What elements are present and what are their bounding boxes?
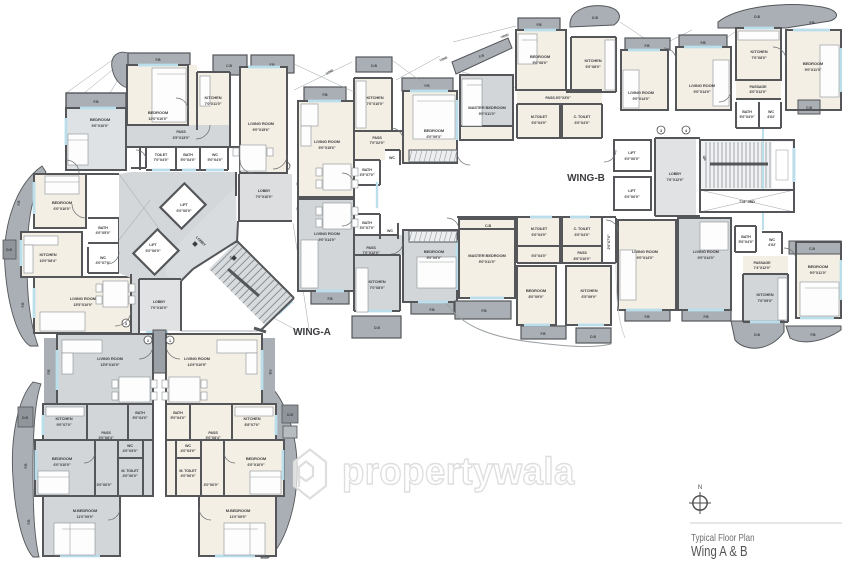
svg-text:F.B: F.B (93, 100, 99, 104)
svg-text:4'0"X6'0": 4'0"X6'0" (122, 474, 137, 478)
svg-text:2: 2 (147, 339, 149, 343)
svg-text:KITCHEN: KITCHEN (584, 58, 601, 63)
svg-text:4'0"X7'0": 4'0"X7'0" (95, 261, 110, 265)
svg-text:6'0"X6'0": 6'0"X6'0" (176, 209, 191, 213)
svg-text:F.B: F.B (327, 297, 333, 301)
svg-text:D.B: D.B (592, 16, 598, 20)
svg-text:BEDROOM: BEDROOM (148, 110, 169, 115)
svg-text:M. TOILET: M. TOILET (121, 469, 139, 473)
svg-text:WC: WC (389, 156, 395, 160)
svg-text:10'0"X8'4": 10'0"X8'4" (40, 259, 57, 263)
svg-text:F.B: F.B (540, 332, 546, 336)
svg-text:5'0"X4'0": 5'0"X4'0" (132, 416, 147, 420)
svg-text:LIVING ROOM: LIVING ROOM (248, 121, 275, 126)
svg-text:LIVING ROOM: LIVING ROOM (70, 296, 97, 301)
svg-text:9'0"X9'0": 9'0"X9'0" (426, 256, 441, 260)
svg-text:LIVING ROOM: LIVING ROOM (184, 356, 211, 361)
svg-text:14'9"X10'5": 14'9"X10'5" (188, 363, 207, 367)
svg-text:KITCHEN: KITCHEN (756, 292, 773, 297)
svg-text:KITCHEN: KITCHEN (204, 95, 221, 100)
svg-text:LIVING ROOM: LIVING ROOM (632, 249, 659, 254)
svg-text:PASS: PASS (366, 246, 376, 250)
svg-text:3'5"X7'0": 3'5"X7'0" (359, 173, 374, 177)
svg-text:PASS: PASS (577, 251, 587, 255)
svg-text:9'0"X14'0": 9'0"X14'0" (698, 256, 715, 260)
svg-text:8'0"X9'0": 8'0"X9'0" (528, 295, 543, 299)
svg-text:F.B: F.B (703, 315, 709, 319)
svg-text:BATH: BATH (362, 168, 372, 172)
svg-text:7'11"-MID: 7'11"-MID (739, 200, 755, 204)
svg-text:M.BEDROOM: M.BEDROOM (73, 508, 98, 513)
svg-text:BATH: BATH (362, 221, 372, 225)
svg-text:9'0"X7'0": 9'0"X7'0" (56, 423, 71, 427)
svg-text:7'0"X4'0": 7'0"X4'0" (153, 158, 168, 162)
svg-text:WC: WC (769, 238, 775, 242)
svg-text:F.B: F.B (155, 58, 161, 62)
svg-text:LIFT: LIFT (628, 189, 636, 193)
svg-text:BATH: BATH (183, 153, 193, 157)
svg-text:4'0"X6'0": 4'0"X6'0" (180, 474, 195, 478)
svg-text:7'6"X10'0": 7'6"X10'0" (367, 102, 384, 106)
svg-text:6'6"X4'0": 6'6"X4'0" (531, 233, 546, 237)
svg-text:6'0"X9'3": 6'0"X9'3" (426, 135, 441, 139)
svg-text:9'0"X11'0": 9'0"X11'0" (805, 68, 822, 72)
svg-text:WC: WC (100, 256, 106, 260)
svg-text:PASS: PASS (208, 431, 218, 435)
svg-text:BEDROOM: BEDROOM (424, 249, 445, 254)
svg-text:7'6"X12'0": 7'6"X12'0" (667, 178, 684, 182)
svg-text:7'0"X8'0": 7'0"X8'0" (369, 286, 384, 290)
svg-text:Wing A & B: Wing A & B (691, 543, 748, 560)
svg-text:10'0"X10'0": 10'0"X10'0" (149, 117, 168, 121)
svg-text:9'0"X14'0": 9'0"X14'0" (694, 90, 711, 94)
svg-text:BEDROOM: BEDROOM (803, 61, 824, 66)
svg-text:BATH: BATH (742, 110, 752, 114)
svg-text:5'0"X4'0": 5'0"X4'0" (170, 416, 185, 420)
svg-text:9'0"X15'6": 9'0"X15'6" (253, 128, 270, 132)
svg-text:BEDROOM: BEDROOM (246, 456, 267, 461)
svg-text:6'0"X6'0": 6'0"X6'0" (624, 157, 639, 161)
svg-text:LIFT: LIFT (628, 151, 636, 155)
svg-text:KITCHEN: KITCHEN (55, 416, 72, 421)
svg-text:BEDROOM: BEDROOM (808, 264, 829, 269)
svg-text:7'0"X10'0": 7'0"X10'0" (256, 195, 273, 199)
svg-text:C. TOILET: C. TOILET (574, 227, 592, 231)
svg-text:F.B: F.B (644, 315, 650, 319)
svg-text:PASS 8'0"X3'0": PASS 8'0"X3'0" (545, 96, 571, 100)
svg-text:F.B: F.B (322, 93, 328, 97)
svg-text:Typical Floor Plan: Typical Floor Plan (691, 532, 755, 543)
svg-text:4'0"X5'0": 4'0"X5'0" (95, 231, 110, 235)
svg-text:7'6"X8'0": 7'6"X8'0" (751, 56, 766, 60)
svg-text:9'0"X14'0": 9'0"X14'0" (637, 256, 654, 260)
svg-text:PASSAGE: PASSAGE (753, 261, 771, 265)
svg-text:F.B: F.B (24, 463, 28, 469)
svg-text:8'0"X12'0": 8'0"X12'0" (750, 90, 767, 94)
svg-text:F.B: F.B (809, 21, 815, 25)
svg-text:C.B: C.B (485, 224, 491, 228)
svg-text:3'5"X13'0": 3'5"X13'0" (173, 136, 190, 140)
svg-text:F.B: F.B (47, 369, 51, 375)
svg-text:WC: WC (212, 153, 218, 157)
svg-text:F.B: F.B (268, 369, 272, 375)
svg-text:D.B: D.B (287, 413, 293, 417)
svg-text:7'0"X10'0": 7'0"X10'0" (151, 306, 168, 310)
svg-text:F.B: F.B (536, 23, 542, 27)
svg-text:propertywala: propertywala (342, 449, 575, 492)
svg-text:C.B: C.B (226, 64, 232, 68)
svg-text:LIVING ROOM: LIVING ROOM (689, 83, 716, 88)
svg-text:3'6"X7'0": 3'6"X7'0" (359, 226, 374, 230)
svg-text:7'0"X12'0": 7'0"X12'0" (363, 251, 380, 255)
svg-text:4'0"X3'0": 4'0"X3'0" (180, 449, 195, 453)
svg-text:BATH: BATH (173, 411, 183, 415)
svg-text:7'0"X11'0": 7'0"X11'0" (205, 102, 222, 106)
svg-text:WING-A: WING-A (293, 327, 331, 338)
svg-text:9'0"X11'0": 9'0"X11'0" (479, 260, 496, 264)
svg-text:7'6"X9'3": 7'6"X9'3" (757, 299, 772, 303)
svg-text:D.B: D.B (754, 15, 760, 19)
svg-text:PASS: PASS (176, 130, 186, 134)
svg-text:D.B: D.B (374, 326, 380, 330)
svg-text:LIVING ROOM: LIVING ROOM (628, 90, 655, 95)
svg-text:15'5"X10'0": 15'5"X10'0" (74, 303, 93, 307)
svg-text:D.B: D.B (371, 64, 377, 68)
svg-text:F.B: F.B (644, 44, 650, 48)
svg-text:6'0"X10'0": 6'0"X10'0" (54, 463, 71, 467)
svg-text:PASS: PASS (372, 136, 382, 140)
svg-text:LIFT: LIFT (149, 243, 157, 247)
svg-text:M.BEDROOM: M.BEDROOM (226, 508, 251, 513)
svg-text:6'6"X4'0": 6'6"X4'0" (531, 121, 546, 125)
svg-text:BATH: BATH (98, 226, 108, 230)
svg-text:BATH: BATH (741, 235, 751, 239)
svg-text:LIVING ROOM: LIVING ROOM (97, 356, 124, 361)
svg-text:N: N (698, 485, 702, 491)
svg-text:LIVING ROOM: LIVING ROOM (314, 231, 341, 236)
svg-text:BEDROOM: BEDROOM (52, 456, 73, 461)
svg-text:KITCHEN: KITCHEN (580, 288, 597, 293)
svg-text:KITCHEN: KITCHEN (368, 279, 385, 284)
svg-text:9'0"X11'0": 9'0"X11'0" (810, 271, 827, 275)
svg-text:6'5"X9'0": 6'5"X9'0" (581, 295, 596, 299)
svg-text:8'6"X10'0": 8'6"X10'0" (574, 257, 591, 261)
svg-text:6'6"X4'0": 6'6"X4'0" (531, 254, 546, 258)
svg-text:BATH: BATH (135, 411, 145, 415)
svg-text:4'X2': 4'X2' (768, 243, 776, 247)
svg-text:3'0"X8'4": 3'0"X8'4" (98, 436, 113, 440)
svg-text:6'0"X6'0": 6'0"X6'0" (145, 249, 160, 253)
svg-text:9'0"X14'0": 9'0"X14'0" (633, 97, 650, 101)
svg-text:M.TOILET: M.TOILET (531, 227, 548, 231)
svg-text:LIVING ROOM: LIVING ROOM (314, 139, 341, 144)
svg-text:BEDROOM: BEDROOM (424, 128, 445, 133)
svg-text:F.B: F.B (481, 309, 487, 313)
svg-text:LOBBY: LOBBY (669, 172, 682, 176)
svg-text:LIFT: LIFT (180, 203, 188, 207)
svg-text:6'0"X10'0": 6'0"X10'0" (248, 463, 265, 467)
svg-text:5'0"X4'0": 5'0"X4'0" (180, 158, 195, 162)
svg-text:LOBBY: LOBBY (153, 300, 166, 304)
svg-text:KITCHEN: KITCHEN (366, 95, 383, 100)
svg-text:MASTER BEDROOM: MASTER BEDROOM (468, 105, 506, 110)
svg-text:6'0"X10'0": 6'0"X10'0" (54, 207, 71, 211)
svg-text:WING-B: WING-B (567, 173, 605, 184)
svg-text:BEDROOM: BEDROOM (530, 54, 551, 59)
svg-text:1: 1 (169, 339, 171, 343)
svg-text:3'0"X8'4": 3'0"X8'4" (205, 436, 220, 440)
svg-text:F.B: F.B (429, 308, 435, 312)
svg-text:D.B: D.B (754, 333, 760, 337)
svg-text:11'0"X9'0": 11'0"X9'0" (77, 515, 94, 519)
svg-text:LIVING ROOM: LIVING ROOM (693, 249, 720, 254)
svg-text:MASTER BEDROOM: MASTER BEDROOM (468, 253, 506, 258)
svg-text:F.B: F.B (700, 41, 706, 45)
svg-text:D.B: D.B (6, 248, 12, 252)
svg-text:7'0"X2'0": 7'0"X2'0" (369, 141, 384, 145)
svg-text:9'0"X15'6": 9'0"X15'6" (319, 146, 336, 150)
svg-text:9'0"X11'0": 9'0"X11'0" (479, 112, 496, 116)
svg-text:5'0"X4'0": 5'0"X4'0" (207, 158, 222, 162)
svg-text:9'6"X10'0": 9'6"X10'0" (92, 124, 109, 128)
svg-text:BEDROOM: BEDROOM (526, 288, 547, 293)
svg-text:D.B: D.B (22, 416, 28, 420)
svg-text:UP: UP (702, 156, 706, 162)
svg-text:4'0"X3'0": 4'0"X3'0" (122, 449, 137, 453)
svg-text:7'4"X12'0": 7'4"X12'0" (754, 266, 771, 270)
svg-text:WC: WC (387, 229, 393, 233)
svg-text:KITCHEN: KITCHEN (750, 49, 767, 54)
svg-text:8'8"X7'0": 8'8"X7'0" (244, 423, 259, 427)
svg-text:WC: WC (185, 444, 191, 448)
svg-text:6'0"X6'0": 6'0"X6'0" (624, 195, 639, 199)
svg-text:C.B: C.B (809, 247, 815, 251)
svg-text:5'6"X4'0": 5'6"X4'0" (739, 115, 754, 119)
svg-text:D.B: D.B (590, 335, 596, 339)
svg-text:WC: WC (127, 444, 133, 448)
svg-text:3'0"X6'0": 3'0"X6'0" (96, 483, 111, 487)
svg-text:F.B: F.B (17, 200, 21, 206)
svg-text:BEDROOM: BEDROOM (90, 117, 111, 122)
svg-text:F.B: F.B (27, 519, 31, 525)
svg-text:6'6"X8'0": 6'6"X8'0" (585, 65, 600, 69)
svg-text:KITCHEN: KITCHEN (243, 416, 260, 421)
svg-text:WC: WC (768, 110, 774, 114)
svg-text:M. TOILET: M. TOILET (179, 469, 197, 473)
svg-text:5'6"X4'0": 5'6"X4'0" (738, 240, 753, 244)
svg-text:6'6"X4'0": 6'6"X4'0" (574, 121, 589, 125)
svg-text:LOBBY: LOBBY (258, 189, 271, 193)
svg-text:15'5"X10'0": 15'5"X10'0" (101, 363, 120, 367)
svg-text:TOILET: TOILET (155, 153, 168, 157)
svg-text:3'0"X6'0": 3'0"X6'0" (203, 483, 218, 487)
svg-text:4'X2': 4'X2' (767, 115, 775, 119)
svg-text:3: 3 (660, 129, 662, 133)
svg-text:9'0"X14'0": 9'0"X14'0" (319, 238, 336, 242)
svg-text:9'0"X8'0": 9'0"X8'0" (532, 61, 547, 65)
svg-text:F.B: F.B (21, 302, 25, 308)
svg-text:C. TOILET: C. TOILET (574, 115, 592, 119)
svg-text:F.B: F.B (810, 333, 816, 337)
svg-text:BEDROOM: BEDROOM (52, 200, 73, 205)
svg-text:PASSAGE: PASSAGE (749, 85, 767, 89)
svg-text:6'6"X4'0": 6'6"X4'0" (574, 233, 589, 237)
svg-text:2'6"X7'6": 2'6"X7'6" (607, 234, 611, 249)
svg-text:PASS: PASS (101, 431, 111, 435)
svg-text:11'0"X9'0": 11'0"X9'0" (230, 515, 247, 519)
svg-text:KITCHEN: KITCHEN (39, 252, 56, 257)
svg-text:M.TOILET: M.TOILET (531, 115, 548, 119)
